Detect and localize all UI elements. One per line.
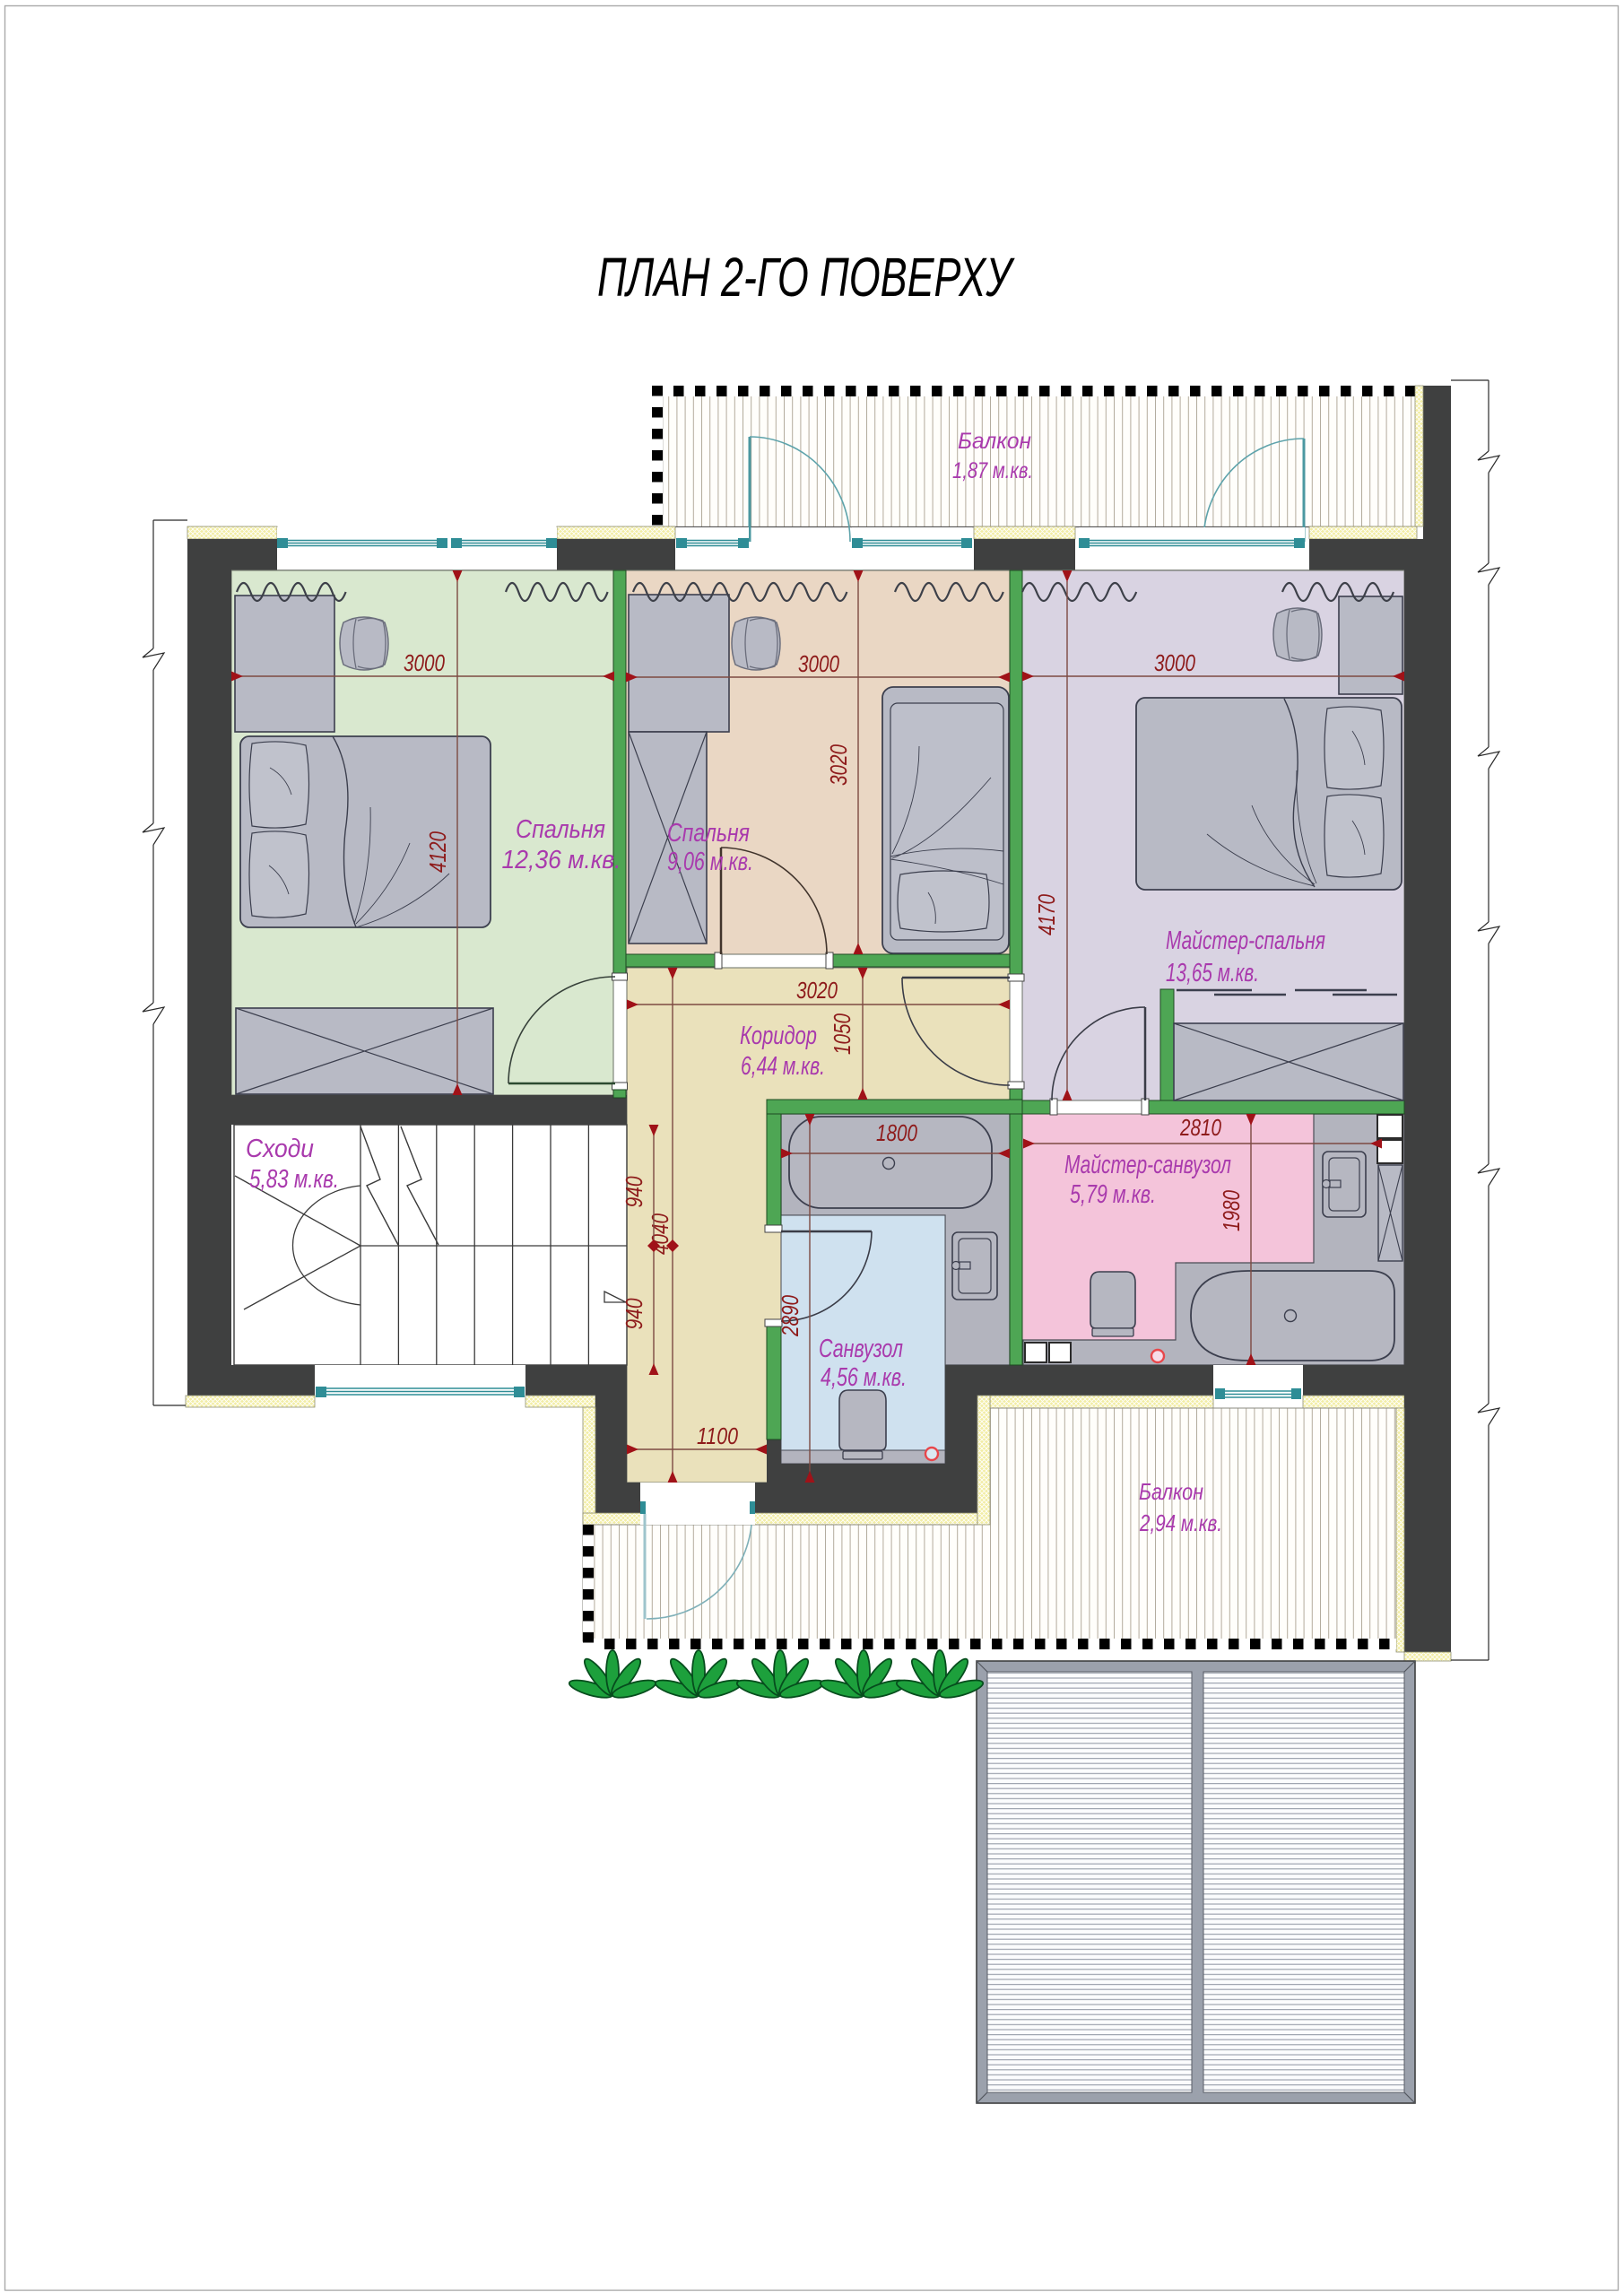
svg-text:4170: 4170 xyxy=(1033,894,1060,935)
svg-text:940: 940 xyxy=(621,1298,647,1329)
svg-text:13,65 м.кв.: 13,65 м.кв. xyxy=(1166,959,1259,987)
svg-text:Спальня: Спальня xyxy=(516,815,605,844)
svg-text:4,56 м.кв.: 4,56 м.кв. xyxy=(821,1363,907,1392)
svg-text:9,06 м.кв.: 9,06 м.кв. xyxy=(667,848,753,876)
svg-text:3020: 3020 xyxy=(825,744,852,786)
svg-text:1050: 1050 xyxy=(829,1013,855,1055)
svg-text:5,79 м.кв.: 5,79 м.кв. xyxy=(1070,1180,1156,1209)
svg-text:2810: 2810 xyxy=(1179,1114,1221,1141)
svg-text:Майстер-санвузол: Майстер-санвузол xyxy=(1064,1151,1231,1179)
svg-text:Балкон: Балкон xyxy=(958,429,1031,454)
svg-text:Коридор: Коридор xyxy=(740,1022,817,1050)
svg-text:3000: 3000 xyxy=(404,649,445,676)
svg-text:12,36 м.кв.: 12,36 м.кв. xyxy=(502,846,621,874)
svg-text:2,94 м.кв.: 2,94 м.кв. xyxy=(1139,1509,1222,1536)
svg-text:Сходи: Сходи xyxy=(246,1135,314,1163)
svg-text:Спальня: Спальня xyxy=(667,819,750,848)
svg-text:Майстер-спальня: Майстер-спальня xyxy=(1166,926,1325,955)
svg-text:Санвузол: Санвузол xyxy=(819,1335,903,1363)
svg-text:2890: 2890 xyxy=(777,1295,803,1337)
svg-text:1800: 1800 xyxy=(876,1119,917,1146)
svg-text:940: 940 xyxy=(621,1176,647,1207)
svg-text:Балкон: Балкон xyxy=(1139,1478,1203,1505)
svg-text:5,83 м.кв.: 5,83 м.кв. xyxy=(249,1165,339,1194)
svg-text:3020: 3020 xyxy=(796,977,838,1004)
svg-text:3000: 3000 xyxy=(798,650,839,677)
svg-text:1100: 1100 xyxy=(697,1422,738,1449)
svg-text:1,87 м.кв.: 1,87 м.кв. xyxy=(952,458,1033,483)
svg-text:ПЛАН 2-ГО ПОВЕРХУ: ПЛАН 2-ГО ПОВЕРХУ xyxy=(597,247,1015,308)
svg-text:4120: 4120 xyxy=(424,831,451,873)
svg-text:3000: 3000 xyxy=(1154,649,1195,676)
svg-text:6,44 м.кв.: 6,44 м.кв. xyxy=(741,1052,825,1081)
svg-text:1980: 1980 xyxy=(1218,1190,1245,1231)
